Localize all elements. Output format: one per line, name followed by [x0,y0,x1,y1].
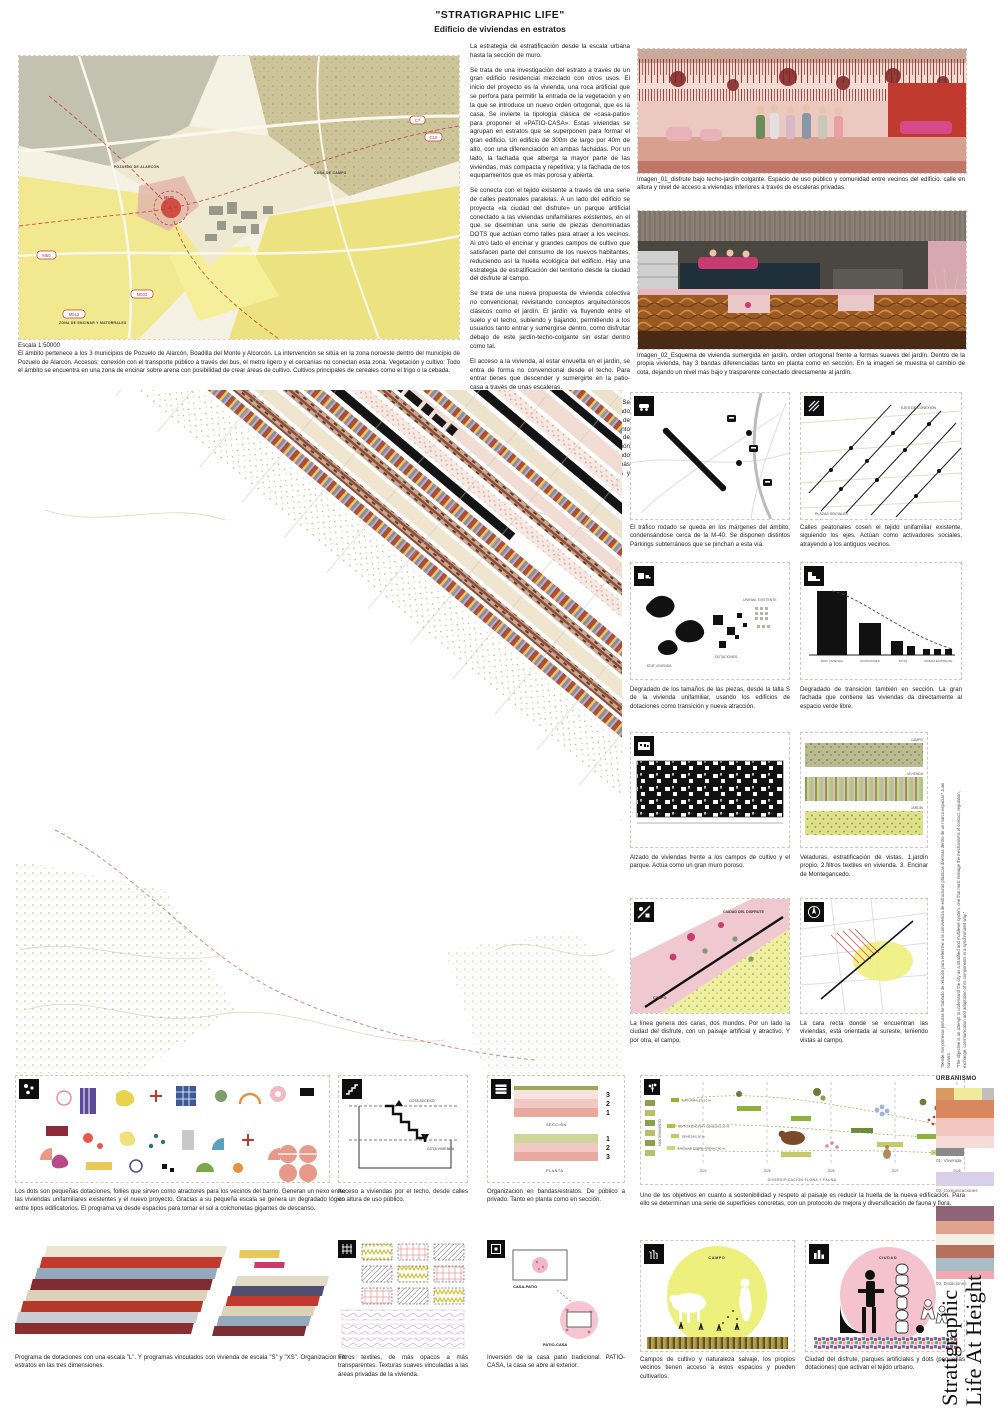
svg-text:PLANTA: PLANTA [546,1169,564,1173]
area-label-pozuelo: POZUELO DE ALARCÓN [114,164,159,169]
legend-swatch [936,1136,994,1148]
quote-1: “Desde mis primeras pinturas he hablado … [940,780,952,1068]
road-badge-m503: M503 [131,290,153,298]
svg-text:CAMPO: CAMPO [911,738,924,742]
blocks-scale-icon [634,566,654,586]
page-title: "STRATIGRAPHIC LIFE" [0,9,1000,21]
svg-text:CAMPO: CAMPO [708,1256,725,1260]
patio-casa-diagram: CASA-PATIO PATIO-CASA [487,1240,625,1350]
svg-text:CASA-PATIO: CASA-PATIO [513,1284,537,1289]
legend-block-comunicaciones: 02. Comunicaciones [936,1172,994,1199]
site-map-caption-block: Escala 1:50000 El ámbito pertenece a los… [18,342,460,376]
board-title-line2: Life At Height [962,1256,986,1406]
diagram-elevation [630,732,790,848]
svg-text:UNIFAM EXISTENTE: UNIFAM EXISTENTE [924,659,953,663]
mobility-icon [634,396,654,416]
territorial-map: C7 C10 M50 M503 M513 BUS CASA DE CAMPO P… [18,55,460,340]
intro-paragraph: El acceso a la vivienda, al estar envuel… [470,358,630,393]
dots-icon [19,1079,39,1099]
svg-text:PATIO-CASA: PATIO-CASA [543,1342,567,1347]
diagram-orientation [800,898,928,1014]
strata-caption: Organización en bandas/estratos. De públ… [487,1188,625,1205]
svg-text:DOTACIONES: DOTACIONES [715,655,738,659]
svg-text:JARDÍN: JARDÍN [911,806,924,810]
area-label-encinar: ZONA DE ENCINAR Y MATORRALES [59,321,127,325]
svg-text:DEHESAS 20 %: DEHESAS 20 % [682,1135,705,1139]
campo-illustration: CAMPO [640,1240,795,1352]
footprint-caption: Uno de los objetivos en cuanto a sosteni… [640,1192,965,1209]
svg-text:EDIF VIVIENDA: EDIF VIVIENDA [647,664,672,668]
svg-text:DOTACIONES: DOTACIONES [860,659,880,663]
sidebar-quotes: “Desde mis primeras pinturas he hablado … [940,780,998,1068]
road-badge-m50: M50 [37,251,56,259]
orientation-icon [804,902,824,922]
legend-label: 01. Vivienda [936,1158,994,1163]
legend-swatch [936,1118,994,1136]
diagram-section-caption: Degradado de transición también en secci… [800,686,962,711]
diagram-traffic [630,392,790,520]
patio-casa-caption: Inversión de la casa patio tradicional. … [487,1354,625,1371]
svg-text:M50: M50 [42,253,51,258]
svg-text:2: 2 [606,1101,610,1108]
legend-label: 02. Comunicaciones [936,1188,994,1193]
render-image-2 [637,210,967,350]
legend-swatch [936,1221,994,1234]
svg-text:1: 1 [606,1136,610,1143]
svg-text:2024: 2024 [699,1169,706,1173]
svg-text:CIUDAD: CIUDAD [879,1256,897,1260]
flora-fauna-timeline: MANTENIMIENTO 2024 2025 2026 2027 2028 M… [640,1075,965,1185]
map-caption: El ámbito pertenece a los 3 municipios d… [18,350,460,375]
city-icon [809,1244,829,1264]
pedestrian-axes-icon [804,396,824,416]
svg-text:EDIF VIVIENDA: EDIF VIVIENDA [821,659,843,663]
legend-swatch [936,1206,994,1221]
svg-text:VIVIENDA: VIVIENDA [907,772,924,776]
field-icon [644,1244,664,1264]
svg-text:2: 2 [606,1145,610,1152]
dots-collage [15,1075,330,1183]
svg-text:1: 1 [606,1110,610,1117]
textile-caption: Filtros textiles, de más opacos a más tr… [338,1354,468,1379]
campo-caption: Campos de cultivo y naturaleza salvaje, … [640,1356,795,1381]
dots-caption: Los dots son pequeñas dotaciones, follie… [15,1188,345,1213]
render-image-1 [637,48,967,174]
legend-swatch [936,1172,994,1186]
svg-text:C10: C10 [430,135,438,140]
program-caption: Programa de dotaciones con una escala "L… [15,1354,345,1371]
board-title-line1: Stratigraphic [938,1256,962,1406]
diagram-pedestrian-caption: Calles peatonales cosen el tejido unifam… [800,524,962,549]
strata-organization-diagram: 3 2 1 SECCIÓN 1 2 3 PLANTA [487,1075,625,1183]
diagram-piece-sizes: UNIFAM. EXISTENTE DOTACIONES EDIF VIVIEN… [630,562,790,680]
legend-swatch [954,1088,982,1100]
svg-text:CAMPO: CAMPO [653,996,667,1000]
svg-text:2025: 2025 [763,1169,770,1173]
intro-paragraph: Se trata de una nueva propuesta de vivie… [470,290,630,352]
svg-text:DIVERSIFICACIÓN FLORA Y FAUNA: DIVERSIFICACIÓN FLORA Y FAUNA [768,1177,837,1182]
page-subtitle: Edificio de viviendas en estratos [0,24,1000,34]
diagram-orientation-caption: La cara recta donde se encuentran las vi… [800,1020,928,1045]
render2-caption: Imagen_02_Esquema de vivienda sumergida … [637,352,965,377]
svg-text:3: 3 [606,1092,610,1099]
svg-text:DOTS: DOTS [899,659,907,663]
two-worlds-icon [634,902,654,922]
road-badge-c7: C7 [410,116,425,124]
svg-text:M513: M513 [69,312,80,317]
section-steps-icon [804,566,824,586]
strata-icon [491,1079,511,1099]
patio-inversion-icon [487,1240,505,1258]
legend-block-vivienda: 01. Vivienda [936,1088,994,1169]
stairs-icon [342,1079,362,1099]
intro-paragraph: Se conecta con el tejido existente a tra… [470,187,630,284]
legend-swatch [982,1088,994,1100]
presentation-board: "STRATIGRAPHIC LIFE" Edificio de viviend… [0,0,1000,1414]
svg-text:COTA VIVIENDA: COTA VIVIENDA [427,1147,455,1151]
road-badge-m513: M513 [63,310,85,318]
svg-text:EJES DE CONEXIÓN: EJES DE CONEXIÓN [901,405,937,410]
program-strata-collage [15,1240,330,1350]
svg-text:M503: M503 [137,292,148,297]
map-scale: Escala 1:50000 [18,342,460,350]
legend-swatch [936,1148,964,1156]
render1-caption: Imagen_01_disfrute bajo techo-jardín col… [637,176,965,193]
board-vertical-title: Stratigraphic Life At Height [938,1256,992,1406]
quote-2: “The objective is an attempt to understa… [956,780,968,1068]
legend-swatch [936,1234,994,1245]
road-badge-c10: C10 [425,133,442,141]
svg-text:3: 3 [606,1154,610,1161]
diagram-the-line: CIUDAD DEL DISFRUTE CAMPO [630,898,790,1014]
bus-label: BUS [164,195,174,200]
access-caption: Acceso a viviendas por el techo, desde c… [338,1188,468,1205]
diagram-sizes-caption: Degradado de los tamaños de las piezas, … [630,686,790,711]
diagram-line-caption: La línea genera dos caras, dos mundos. P… [630,1020,790,1045]
legend-swatch [936,1100,994,1118]
svg-text:2026: 2026 [827,1169,834,1173]
svg-text:COTA ACCESO: COTA ACCESO [409,1099,435,1103]
diagram-pedestrian-streets: EJES DE CONEXIÓN PLAZAS SOCIALES [800,392,962,520]
access-diagram: COTA ACCESO COTA VIVIENDA [338,1075,468,1183]
intro-paragraph: La estrategia de estratificación desde l… [470,43,630,61]
diagram-veladuras-caption: Veladuras, estratificación de vistas. 1.… [800,854,928,879]
textile-icon [338,1240,356,1258]
svg-text:UNIFAM. EXISTENTE: UNIFAM. EXISTENTE [743,598,777,602]
flora-icon [644,1079,660,1095]
diagram-veladuras: CAMPO VIVIENDA JARDÍN [800,732,928,848]
svg-text:2027: 2027 [891,1169,898,1173]
masterplan-map [15,390,622,1073]
textile-filters-panel [338,1240,468,1350]
diagram-section-gradient: EDIF VIVIENDA DOTACIONES DOTS UNIFAM EXI… [800,562,962,680]
svg-text:SECCIÓN: SECCIÓN [546,1122,567,1127]
intro-paragraph: Se trata de una investigación del estrat… [470,67,630,182]
svg-text:PLAZAS SOCIALES: PLAZAS SOCIALES [815,512,848,516]
area-label-casa-de-campo: CASA DE CAMPO [314,171,347,175]
svg-text:MANTENIMIENTO: MANTENIMIENTO [658,1119,662,1146]
diagram-elevation-caption: Alzado de viviendas frente a los campos … [630,854,790,871]
sidebar-section-label: URBANISMO [936,1076,977,1082]
svg-text:C7: C7 [415,118,421,123]
svg-text:CIUDAD DEL DISFRUTE: CIUDAD DEL DISFRUTE [723,910,765,914]
diagram-traffic-caption: El tráfico rodado se queda en los márgen… [630,524,790,549]
legend-swatch [936,1088,954,1100]
porous-wall-icon [634,736,654,756]
